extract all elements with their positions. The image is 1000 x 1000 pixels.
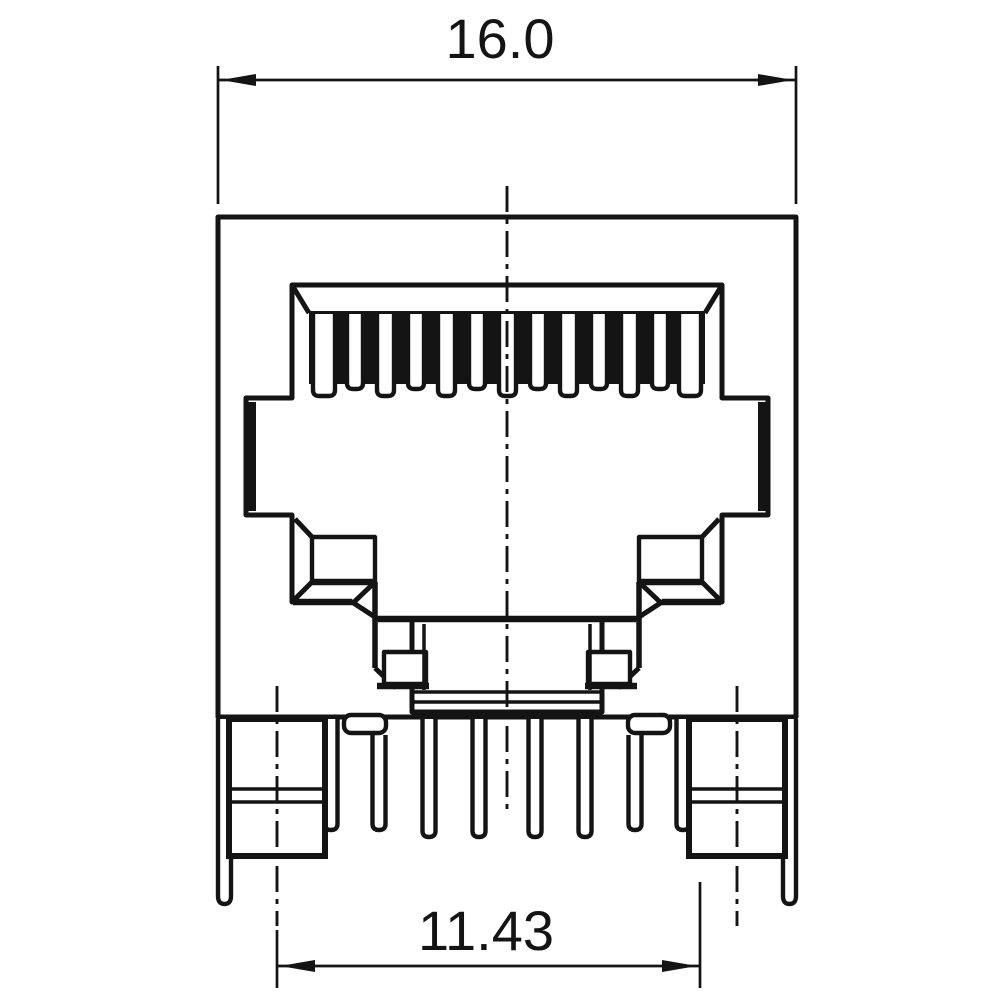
- pin-row-dimension: 11.43: [277, 882, 700, 988]
- comb-slot: [679, 314, 701, 396]
- arrowhead-left: [280, 960, 315, 972]
- arrowhead-right: [662, 960, 697, 972]
- comb-slot: [377, 314, 394, 396]
- technical-drawing-page: 16.0: [0, 0, 1000, 1000]
- step-face: [639, 537, 702, 582]
- pin: [373, 735, 386, 830]
- lower-step-left: [384, 652, 426, 684]
- comb-slot: [408, 314, 424, 389]
- pin: [579, 719, 592, 837]
- arrowhead-right: [758, 74, 793, 86]
- comb-slot: [652, 314, 668, 389]
- comb-slot: [621, 314, 638, 396]
- pin: [629, 735, 642, 830]
- comb-slot: [347, 314, 363, 389]
- overall-width-label: 16.0: [446, 7, 555, 70]
- shoulder-tab-left: [344, 715, 386, 733]
- comb-slot: [438, 314, 455, 396]
- pin-row-label: 11.43: [418, 899, 554, 962]
- comb-slot: [560, 314, 577, 396]
- lower-step-right: [588, 652, 630, 684]
- comb-slot: [530, 314, 546, 389]
- pin: [423, 719, 436, 837]
- step-face: [312, 537, 375, 582]
- comb-slot: [469, 314, 485, 389]
- rj45-front-view-drawing: 16.0: [0, 0, 1000, 1000]
- comb-slot: [313, 314, 335, 396]
- pin: [473, 719, 486, 837]
- pin: [529, 719, 542, 837]
- comb-slot: [591, 314, 607, 389]
- arrowhead-left: [221, 74, 256, 86]
- shoulder-tab-right: [628, 715, 670, 733]
- overall-width-dimension: 16.0: [218, 7, 796, 204]
